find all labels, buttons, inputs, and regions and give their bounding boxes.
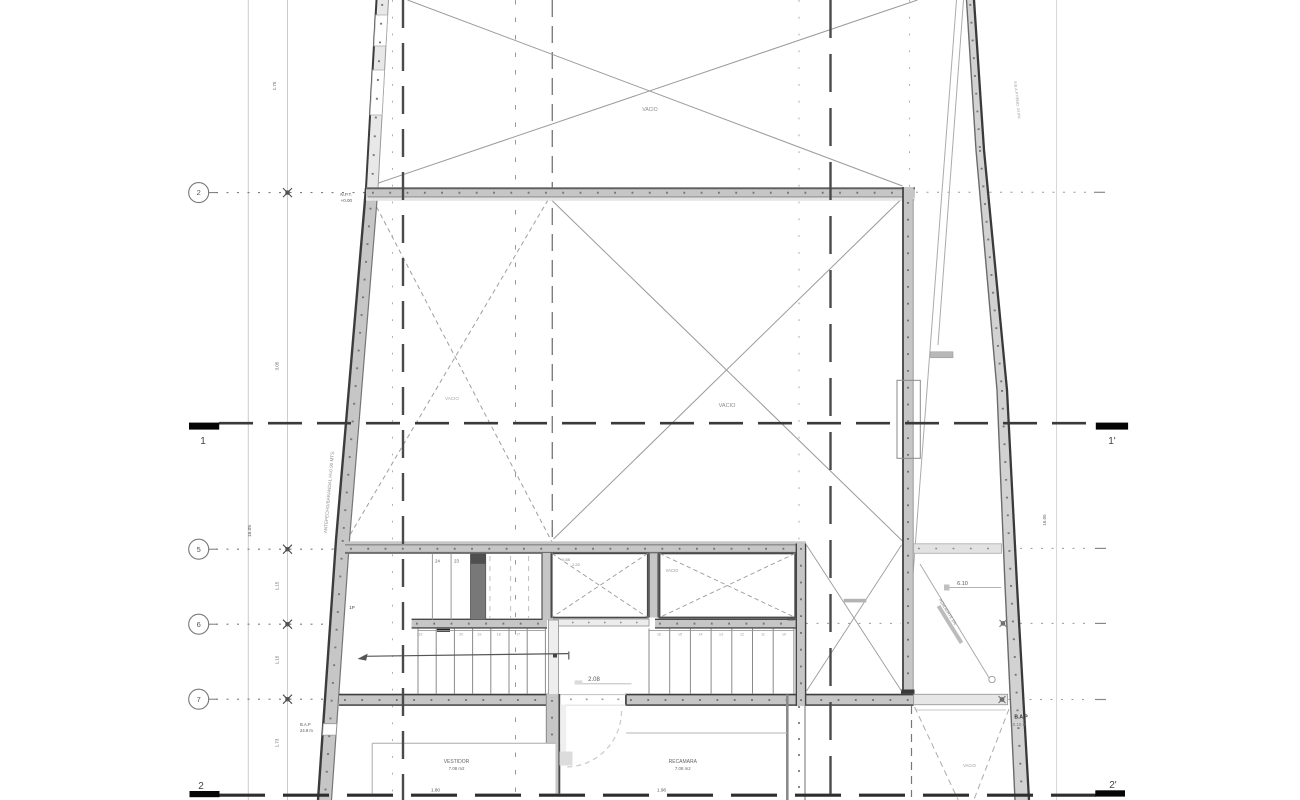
svg-text:16.05: 16.05 (247, 525, 253, 537)
svg-text:1': 1' (1108, 436, 1116, 447)
svg-text:24.8 m: 24.8 m (300, 728, 313, 733)
svg-text:VACIO: VACIO (963, 763, 976, 768)
svg-text:2: 2 (198, 781, 204, 792)
svg-text:17: 17 (516, 632, 520, 636)
svg-text:S.B.A.P PEND. 24.8%: S.B.A.P PEND. 24.8% (1013, 81, 1021, 120)
svg-text:1.73: 1.73 (275, 738, 280, 747)
svg-text:19: 19 (477, 632, 481, 636)
svg-text:14: 14 (699, 632, 703, 636)
svg-text:2: 2 (197, 188, 201, 197)
svg-text:5: 5 (197, 545, 201, 554)
svg-text:20: 20 (459, 632, 463, 636)
svg-text:1: 1 (200, 436, 206, 447)
svg-text:1.15: 1.15 (275, 655, 280, 664)
svg-text:VESTIDOR: VESTIDOR (444, 759, 470, 765)
svg-text:B.A.P: B.A.P (1014, 715, 1028, 721)
svg-text:16: 16 (657, 632, 661, 636)
svg-text:11: 11 (761, 632, 765, 636)
svg-text:VACIO: VACIO (666, 568, 679, 573)
svg-text:18: 18 (497, 632, 501, 636)
svg-text:1.98: 1.98 (657, 788, 666, 793)
svg-text:+0.00: +0.00 (341, 198, 353, 203)
svg-text:VACIO: VACIO (719, 403, 736, 409)
svg-text:7: 7 (197, 695, 201, 704)
svg-text:1.75: 1.75 (272, 81, 277, 90)
svg-text:VACIO: VACIO (642, 107, 657, 113)
svg-text:0.10 m: 0.10 m (1013, 722, 1027, 727)
svg-text:16.05: 16.05 (1042, 514, 1047, 526)
svg-text:3.05: 3.05 (275, 361, 280, 370)
svg-text:RECAMARA: RECAMARA (669, 759, 698, 765)
svg-text:7.08 m2: 7.08 m2 (449, 766, 465, 771)
svg-text:24: 24 (435, 559, 440, 564)
svg-text:23: 23 (454, 559, 459, 564)
svg-text:15: 15 (678, 632, 682, 636)
svg-text:1.80: 1.80 (431, 788, 440, 793)
svg-text:VACIO: VACIO (445, 396, 459, 401)
svg-text:6: 6 (197, 620, 201, 629)
svg-text:B.A.P: B.A.P (300, 722, 311, 727)
svg-text:0.88: 0.88 (562, 557, 571, 562)
svg-text:13: 13 (719, 632, 723, 636)
svg-text:6.10: 6.10 (957, 581, 968, 587)
svg-text:ANTEPECHO/BARANDAL H=0.90 MTS.: ANTEPECHO/BARANDAL H=0.90 MTS. (323, 450, 335, 533)
svg-text:10: 10 (782, 632, 786, 636)
svg-text:2.08: 2.08 (588, 677, 600, 683)
svg-text:7.08 m2: 7.08 m2 (675, 766, 691, 771)
svg-text:22: 22 (419, 632, 423, 636)
svg-text:1P: 1P (349, 605, 355, 610)
svg-text:2': 2' (1109, 780, 1117, 791)
svg-text:2.20: 2.20 (572, 562, 581, 567)
svg-text:1.15: 1.15 (275, 581, 280, 590)
svg-text:N.P.T.: N.P.T. (340, 192, 352, 197)
svg-text:12: 12 (740, 632, 744, 636)
